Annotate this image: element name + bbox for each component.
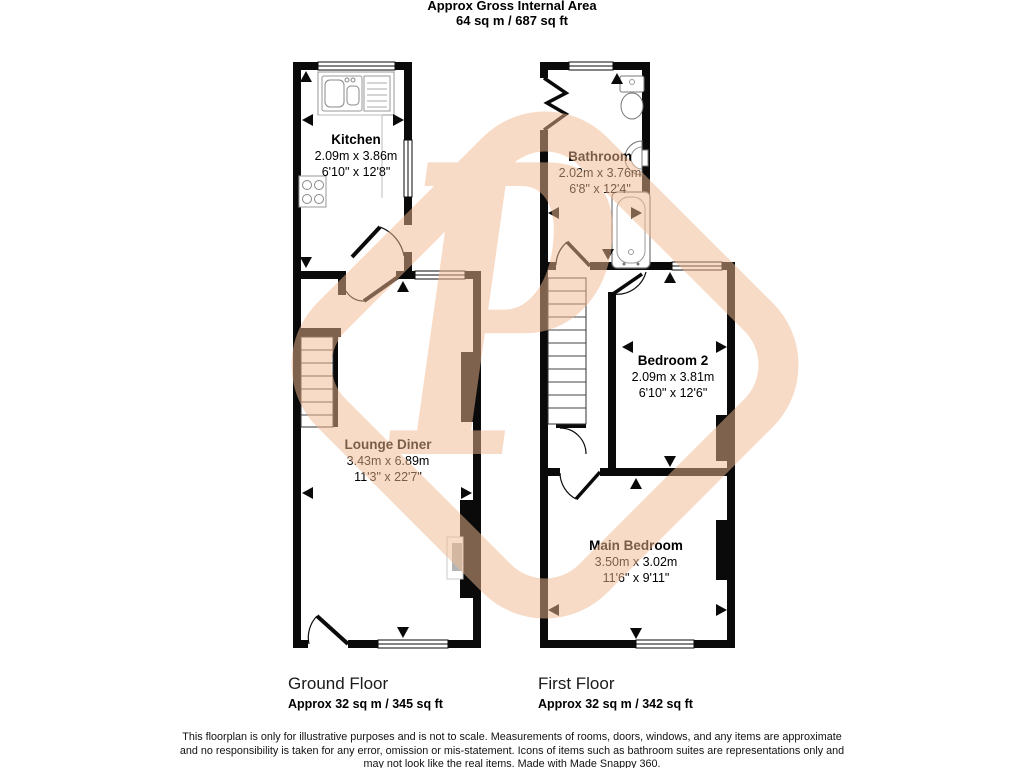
first-floor-footer: First Floor Approx 32 sq m / 342 sq ft: [538, 674, 693, 711]
bathroom-imperial: 6'8" x 12'4": [559, 181, 642, 197]
kitchen-metric: 2.09m x 3.86m: [315, 148, 398, 164]
header-area: 64 sq m / 687 sq ft: [0, 13, 1024, 28]
lounge-metric: 3.43m x 6.89m: [345, 453, 432, 469]
fireplace-icon: [447, 537, 463, 579]
bifold-door: [544, 78, 566, 130]
bedroom2-name: Bedroom 2: [632, 353, 715, 369]
main-bedroom-metric: 3.50m x 3.02m: [589, 554, 683, 570]
main-bedroom-name: Main Bedroom: [589, 538, 683, 554]
first-floor-stairs: [548, 278, 586, 424]
lounge-name: Lounge Diner: [345, 437, 432, 453]
room-label-kitchen: Kitchen 2.09m x 3.86m 6'10" x 12'8": [315, 132, 398, 180]
floorplan-drawing: [0, 0, 1024, 768]
main-bedroom-imperial: 11'6" x 9'11": [589, 570, 683, 586]
ground-floor-doors: [308, 227, 404, 644]
toilet-icon: [620, 76, 644, 119]
disclaimer-line-1: This floorplan is only for illustrative …: [0, 731, 1024, 745]
bedroom2-metric: 2.09m x 3.81m: [632, 369, 715, 385]
first-floor-area: Approx 32 sq m / 342 sq ft: [538, 697, 693, 711]
room-label-lounge-diner: Lounge Diner 3.43m x 6.89m 11'3" x 22'7": [345, 437, 432, 485]
kitchen-imperial: 6'10" x 12'8": [315, 164, 398, 180]
kitchen-name: Kitchen: [315, 132, 398, 148]
bedroom2-imperial: 6'10" x 12'6": [632, 385, 715, 401]
bathroom-metric: 2.02m x 3.76m: [559, 165, 642, 181]
kitchen-sink-icon: [318, 72, 394, 115]
ground-floor-label: Ground Floor: [288, 674, 443, 694]
lounge-imperial: 11'3" x 22'7": [345, 469, 432, 485]
header-title: Approx Gross Internal Area: [0, 0, 1024, 13]
room-label-bathroom: Bathroom 2.02m x 3.76m 6'8" x 12'4": [559, 149, 642, 197]
room-label-main-bedroom: Main Bedroom 3.50m x 3.02m 11'6" x 9'11": [589, 538, 683, 586]
disclaimer-line-2: and no responsibility is taken for any e…: [0, 745, 1024, 759]
first-floor-label: First Floor: [538, 674, 693, 694]
floorplan-page: Approx Gross Internal Area 64 sq m / 687…: [0, 0, 1024, 768]
disclaimer-text: This floorplan is only for illustrative …: [0, 731, 1024, 768]
bathtub-icon: [612, 192, 650, 268]
room-label-bedroom-2: Bedroom 2 2.09m x 3.81m 6'10" x 12'6": [632, 353, 715, 401]
gross-internal-area-header: Approx Gross Internal Area 64 sq m / 687…: [0, 0, 1024, 28]
disclaimer-line-3: may not look like the real items. Made w…: [0, 758, 1024, 768]
kitchen-hob-icon: [299, 176, 326, 207]
ground-floor-footer: Ground Floor Approx 32 sq m / 345 sq ft: [288, 674, 443, 711]
bathroom-name: Bathroom: [559, 149, 642, 165]
ground-floor-stairs: [301, 337, 333, 427]
ground-floor-area: Approx 32 sq m / 345 sq ft: [288, 697, 443, 711]
